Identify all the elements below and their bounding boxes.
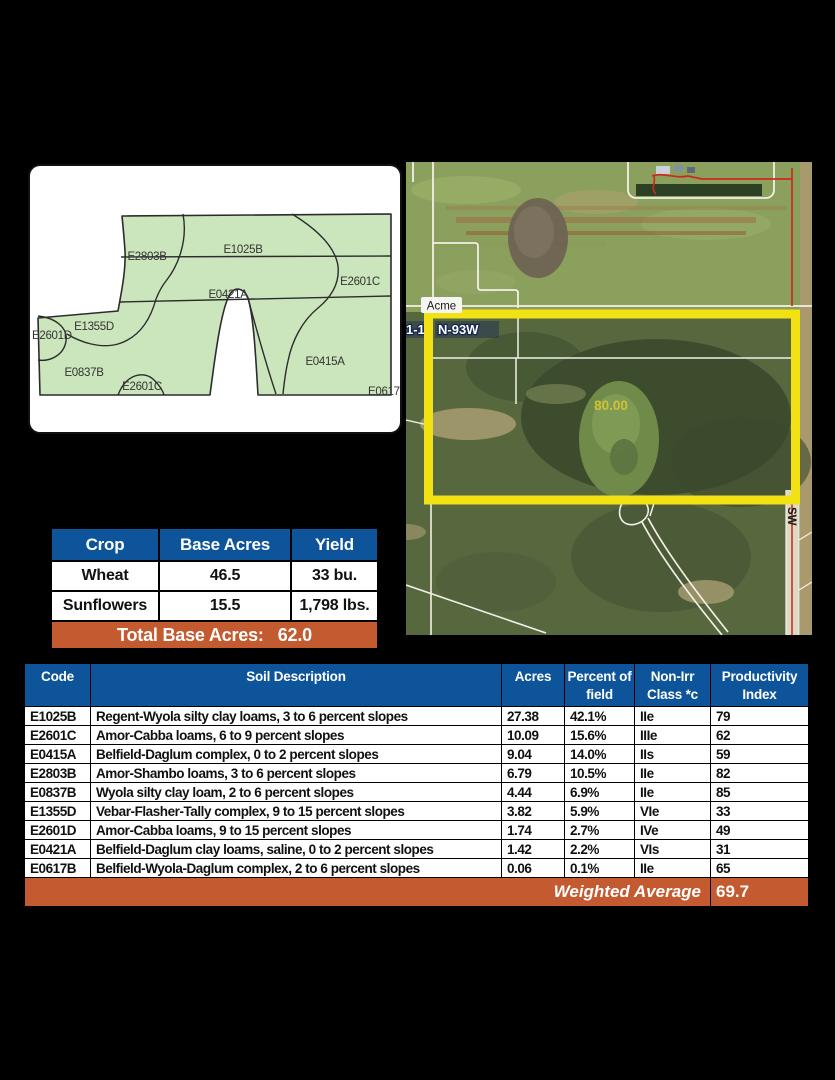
soil-table-row-cell: Belfield-Daglum clay loams, saline, 0 to…	[91, 840, 502, 859]
crop-table-row-cell: Wheat	[51, 561, 159, 591]
soil-header-productivity: Productivity Index	[711, 664, 809, 707]
soil-header-description: Soil Description	[91, 664, 502, 707]
soil-table-row: E2601DAmor-Cabba loams, 9 to 15 percent …	[25, 821, 809, 840]
crop-header-yield: Yield	[291, 528, 378, 561]
soil-table-row-cell: 10.09	[502, 726, 565, 745]
soil-table-row-cell: 6.79	[502, 764, 565, 783]
map-label-e0421a: E0421A	[208, 289, 248, 301]
soil-header-code: Code	[25, 664, 91, 707]
aerial-drawing: 1-13 N-93W SW 80.00 Acme	[406, 162, 812, 635]
soil-header-nonirr-class: Non-Irr Class *c	[635, 664, 711, 707]
soil-table-row-cell: E1025B	[25, 707, 91, 726]
crop-total-value: 62.0	[278, 625, 312, 645]
soil-table-row: E1355DVebar-Flasher-Tally complex, 9 to …	[25, 802, 809, 821]
soil-table-row-cell: 27.38	[502, 707, 565, 726]
township-label: 1-13 N-93W	[406, 321, 499, 338]
soil-table-row-cell: 6.9%	[565, 783, 635, 802]
crop-table-row-cell: Sunflowers	[51, 591, 159, 621]
soil-table-row-cell: Amor-Shambo loams, 3 to 6 percent slopes	[91, 764, 502, 783]
soil-table-row-cell: Amor-Cabba loams, 6 to 9 percent slopes	[91, 726, 502, 745]
soil-table-row-cell: E0415A	[25, 745, 91, 764]
weighted-average-label: Weighted Average	[25, 878, 711, 907]
crop-table-row-cell: 15.5	[159, 591, 291, 621]
crop-table-row: Wheat46.533 bu.	[51, 561, 378, 591]
soil-map-drawing: E2803B E1025B E2601C E0421A E1355D E2601…	[30, 166, 400, 432]
crop-total-cell: Total Base Acres:62.0	[51, 621, 378, 649]
map-label-e0415a: E0415A	[305, 356, 345, 368]
soil-table-row-cell: 59	[711, 745, 809, 764]
soil-table-row-cell: 0.06	[502, 859, 565, 878]
soil-table-row-cell: 2.7%	[565, 821, 635, 840]
tract-acres-label: 80.00	[594, 398, 628, 413]
soil-table-row-cell: Belfield-Daglum complex, 0 to 2 percent …	[91, 745, 502, 764]
crop-table-row-cell: 46.5	[159, 561, 291, 591]
map-label-e2803b: E2803B	[127, 251, 167, 263]
soil-table-row-cell: E2803B	[25, 764, 91, 783]
soil-table-row-cell: E0617B	[25, 859, 91, 878]
weighted-average-value: 69.7	[711, 878, 809, 907]
aerial-photo: 1-13 N-93W SW 80.00 Acme	[406, 162, 812, 635]
soil-table-row-cell: Wyola silty clay loam, 2 to 6 percent sl…	[91, 783, 502, 802]
soil-map-panel: E2803B E1025B E2601C E0421A E1355D E2601…	[30, 166, 400, 432]
soil-table-row: E0617BBelfield-Wyola-Daglum complex, 2 t…	[25, 859, 809, 878]
soil-table-row-cell: IIe	[635, 859, 711, 878]
soil-table-row-cell: 0.1%	[565, 859, 635, 878]
soil-table-row-cell: 85	[711, 783, 809, 802]
soil-table-row-cell: 5.9%	[565, 802, 635, 821]
soil-table: Code Soil Description Acres Percent of f…	[24, 663, 809, 907]
report-page: E2803B E1025B E2601C E0421A E1355D E2601…	[0, 0, 835, 1080]
soil-table-row-cell: Belfield-Wyola-Daglum complex, 2 to 6 pe…	[91, 859, 502, 878]
map-label-e0837b: E0837B	[64, 367, 104, 379]
soil-table-row-cell: 65	[711, 859, 809, 878]
soil-table-row: E2601CAmor-Cabba loams, 6 to 9 percent s…	[25, 726, 809, 745]
place-label-acme: Acme	[421, 297, 462, 313]
soil-table-row-cell: 10.5%	[565, 764, 635, 783]
soil-table-row-cell: IIs	[635, 745, 711, 764]
soil-table-body: E1025BRegent-Wyola silty clay loams, 3 t…	[25, 707, 809, 878]
soil-table-row-cell: 9.04	[502, 745, 565, 764]
soil-table-row-cell: IIe	[635, 707, 711, 726]
soil-table-row-cell: 42.1%	[565, 707, 635, 726]
soil-table-row-cell: Vebar-Flasher-Tally complex, 9 to 15 per…	[91, 802, 502, 821]
soil-table-row-cell: E2601C	[25, 726, 91, 745]
road-label-sw: SW	[785, 507, 797, 526]
soil-table-row-cell: IIIe	[635, 726, 711, 745]
crop-table-row: Sunflowers15.51,798 lbs.	[51, 591, 378, 621]
township-label-right: N-93W	[438, 322, 479, 337]
crop-table-body: Wheat46.533 bu.Sunflowers15.51,798 lbs.	[51, 561, 378, 621]
soil-table-row-cell: 14.0%	[565, 745, 635, 764]
soil-table-row-cell: E0837B	[25, 783, 91, 802]
soil-table-row-cell: IVe	[635, 821, 711, 840]
map-label-e2601c-top: E2601C	[340, 276, 380, 288]
map-label-e2601c-bottom: E2601C	[122, 381, 162, 393]
soil-table-row-cell: 31	[711, 840, 809, 859]
crop-table-row-cell: 33 bu.	[291, 561, 378, 591]
soil-table-row-cell: E2601D	[25, 821, 91, 840]
soil-table-row-cell: 3.82	[502, 802, 565, 821]
soil-table-row-cell: 79	[711, 707, 809, 726]
soil-table-row-cell: 1.42	[502, 840, 565, 859]
crop-table-header-row: Crop Base Acres Yield	[51, 528, 378, 561]
soil-table-row: E0421ABelfield-Daglum clay loams, saline…	[25, 840, 809, 859]
soil-table-row: E0415ABelfield-Daglum complex, 0 to 2 pe…	[25, 745, 809, 764]
soil-table-row-cell: 33	[711, 802, 809, 821]
soil-header-acres: Acres	[502, 664, 565, 707]
soil-table-row-cell: IIe	[635, 783, 711, 802]
soil-table-row-cell: VIe	[635, 802, 711, 821]
soil-table-row-cell: 62	[711, 726, 809, 745]
soil-table-row-cell: Regent-Wyola silty clay loams, 3 to 6 pe…	[91, 707, 502, 726]
soil-table-row-cell: VIs	[635, 840, 711, 859]
soil-table-row-cell: 1.74	[502, 821, 565, 840]
soil-table-header-row: Code Soil Description Acres Percent of f…	[25, 664, 809, 707]
map-label-e0617b: E0617B	[368, 386, 400, 398]
soil-table-row: E1025BRegent-Wyola silty clay loams, 3 t…	[25, 707, 809, 726]
crop-total-row: Total Base Acres:62.0	[51, 621, 378, 649]
soil-table-row-cell: 4.44	[502, 783, 565, 802]
soil-table-row-cell: 15.6%	[565, 726, 635, 745]
aerial-right-margin-strip	[800, 162, 812, 635]
soil-table-row-cell: E1355D	[25, 802, 91, 821]
map-label-e2601d: E2601D	[32, 330, 72, 342]
crop-table: Crop Base Acres Yield Wheat46.533 bu.Sun…	[50, 527, 379, 650]
soil-table-row-cell: IIe	[635, 764, 711, 783]
crop-header-crop: Crop	[51, 528, 159, 561]
place-label-acme-text: Acme	[427, 301, 456, 313]
soil-table-row-cell: Amor-Cabba loams, 9 to 15 percent slopes	[91, 821, 502, 840]
soil-header-percent: Percent of field	[565, 664, 635, 707]
crop-header-base-acres: Base Acres	[159, 528, 291, 561]
crop-total-label: Total Base Acres:	[117, 625, 264, 645]
soil-weighted-average-row: Weighted Average 69.7	[25, 878, 809, 907]
soil-table-row: E0837BWyola silty clay loam, 2 to 6 perc…	[25, 783, 809, 802]
map-label-e1025b: E1025B	[223, 244, 263, 256]
soil-table-row-cell: 49	[711, 821, 809, 840]
crop-table-row-cell: 1,798 lbs.	[291, 591, 378, 621]
soil-table-row-cell: E0421A	[25, 840, 91, 859]
soil-table-row-cell: 2.2%	[565, 840, 635, 859]
soil-table-row: E2803BAmor-Shambo loams, 3 to 6 percent …	[25, 764, 809, 783]
map-label-e1355d: E1355D	[74, 321, 114, 333]
soil-table-row-cell: 82	[711, 764, 809, 783]
